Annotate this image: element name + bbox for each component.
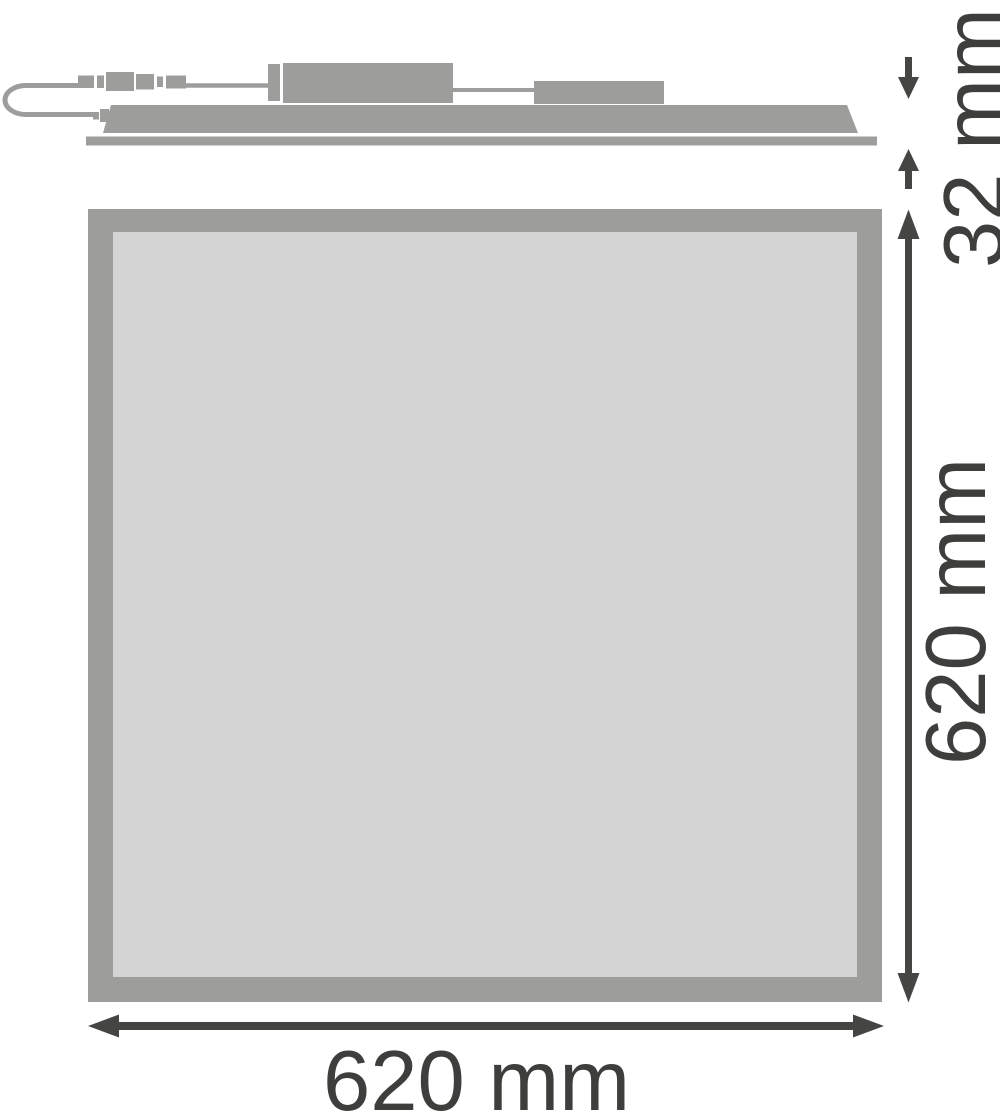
connector-segment-6 <box>166 76 186 89</box>
connector-segment-5 <box>157 77 163 88</box>
connector-segment-3 <box>106 72 134 91</box>
driver-endcap <box>268 64 280 101</box>
height-bottom-arrowhead <box>898 973 920 1003</box>
height-top-arrowhead <box>898 210 920 240</box>
secondary-box <box>534 81 664 104</box>
width-left-arrowhead <box>88 1015 119 1038</box>
thickness-down-arrowhead <box>898 77 919 99</box>
cable-loop <box>5 86 94 115</box>
thickness-up-arrowhead <box>898 149 919 171</box>
panel-flange-side <box>86 137 877 146</box>
dimension-label-width: 620 mm <box>323 1039 630 1118</box>
dimension-thickness-arrows <box>898 57 919 189</box>
connector-segment-2 <box>97 76 104 89</box>
panel-face-front <box>113 232 857 977</box>
dimension-label-thickness: 32 mm <box>932 8 1000 268</box>
thickness-up-arrow-shaft <box>905 170 912 189</box>
width-right-arrowhead <box>853 1015 884 1038</box>
width-line-shaft <box>117 1022 855 1030</box>
thickness-down-arrow-shaft <box>905 57 912 78</box>
dimension-drawing: 32 mm 620 mm 620 mm <box>0 0 1000 1118</box>
connector-segment-4 <box>136 74 154 90</box>
drawing-svg <box>0 0 1000 1118</box>
driver-box <box>283 63 453 103</box>
side-view <box>5 63 877 146</box>
connector-segment-1 <box>78 76 94 89</box>
dimension-label-height: 620 mm <box>914 458 999 765</box>
front-view <box>88 209 882 1002</box>
panel-body-side <box>103 105 858 133</box>
cable-entry-nub-small <box>93 112 99 120</box>
